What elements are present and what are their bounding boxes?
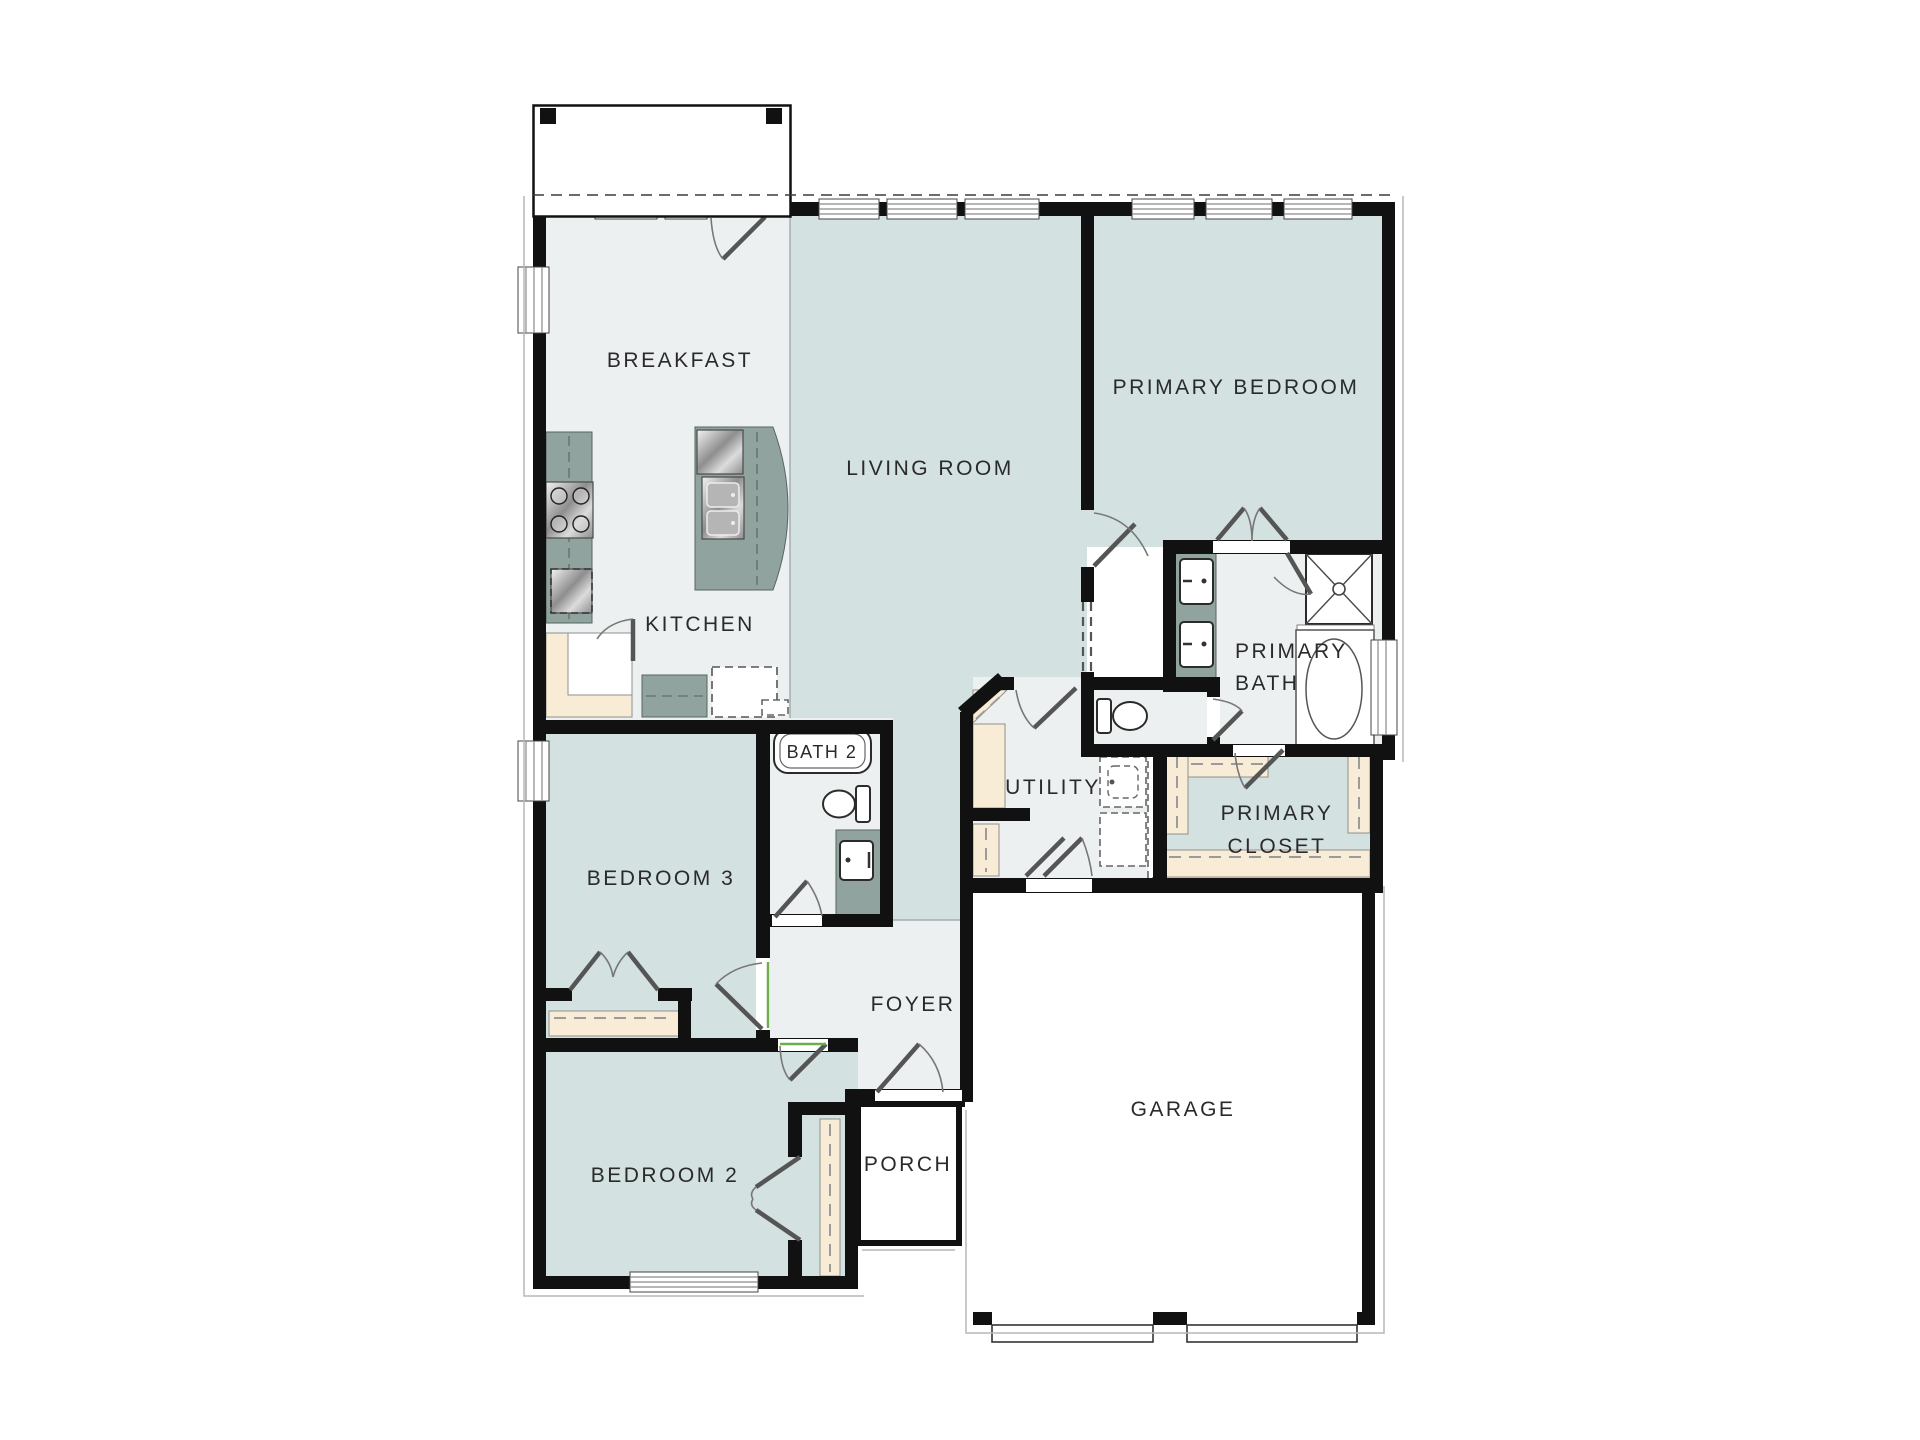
utility-cabinet [973,724,1005,808]
island-appliance-icon [697,430,743,474]
room-label-porch: PORCH [864,1153,952,1176]
patio-post [540,108,556,124]
closet-shelf [549,1011,679,1036]
room-label-bath2: BATH 2 [787,742,858,762]
room-label-primary-bedroom: PRIMARY BEDROOM [1113,376,1360,399]
toilet-icon [856,786,870,822]
room-label-bedroom3: BEDROOM 3 [587,867,736,890]
water-closet-fixtures [1097,699,1147,733]
garage-door [992,1312,1153,1325]
room-label-primary-bath: BATH [1235,672,1299,695]
room-bedroom2 [546,1038,858,1278]
washer-dryer-icon [1100,813,1146,866]
window [1371,640,1397,735]
room-label-living-room: LIVING ROOM [846,457,1014,480]
garage-door [1187,1312,1357,1325]
room-label-primary-bath: PRIMARY [1235,640,1348,663]
patio-outline [534,106,791,217]
toilet-icon [1097,699,1111,733]
room-label-kitchen: KITCHEN [645,613,755,636]
floor-plan: BREAKFAST LIVING ROOM PRIMARY BEDROOM KI… [0,0,1920,1440]
room-label-garage: GARAGE [1131,1098,1236,1121]
linen-cabinet [762,700,788,715]
patio-post [766,108,782,124]
room-label-breakfast: BREAKFAST [607,349,753,372]
room-label-foyer: FOYER [871,993,956,1016]
room-label-primary-closet: PRIMARY [1221,802,1334,825]
room-label-utility: UTILITY [1005,776,1101,799]
room-label-primary-closet: CLOSET [1227,835,1326,858]
utility-door-floor [1014,677,1081,690]
room-label-bedroom2: BEDROOM 2 [591,1164,740,1187]
washer-dryer-icon [1100,757,1146,807]
dishwasher-icon [551,569,592,613]
